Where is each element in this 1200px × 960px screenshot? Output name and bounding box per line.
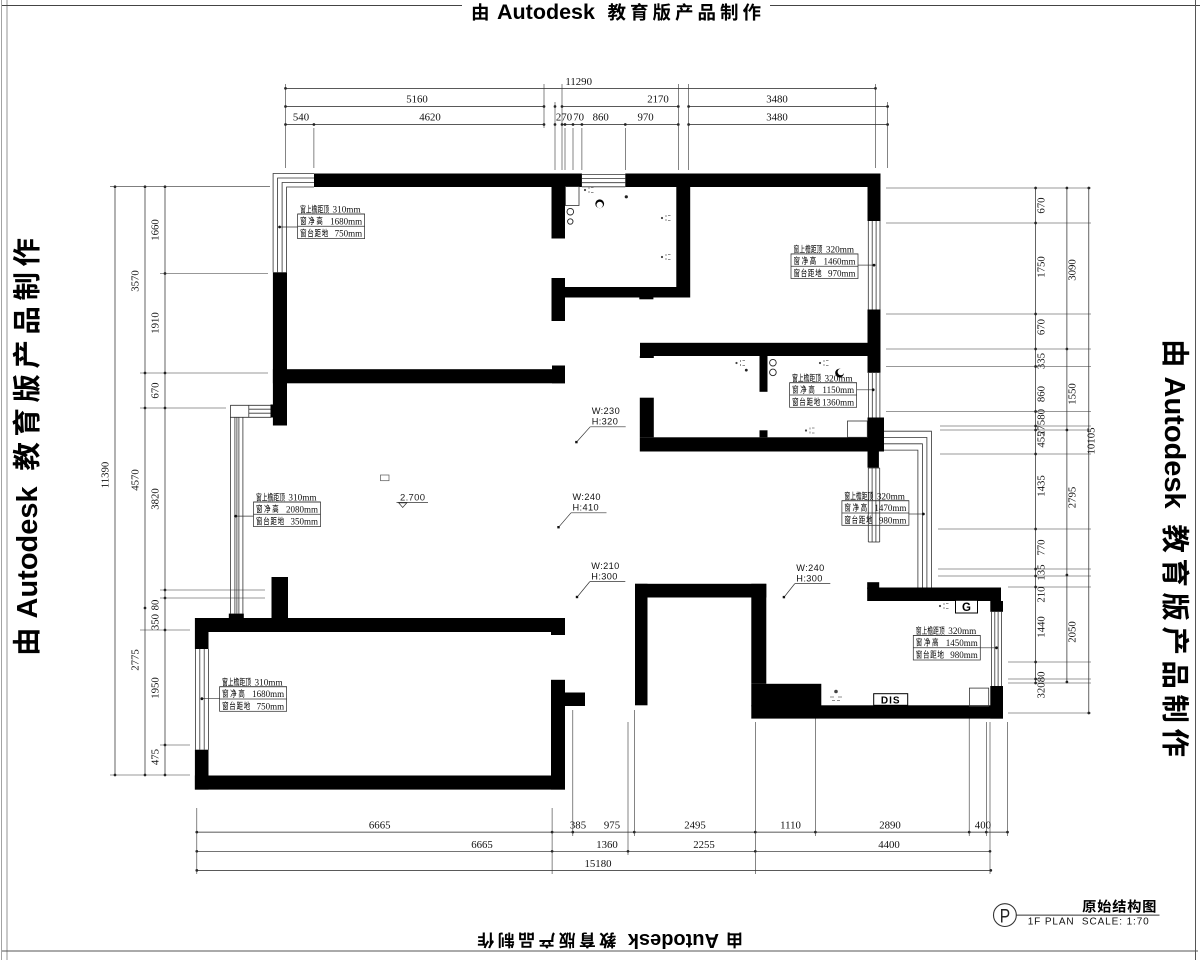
svg-text:670: 670 <box>150 382 162 398</box>
svg-text:2255: 2255 <box>693 839 715 851</box>
svg-text:2.700: 2.700 <box>400 493 425 504</box>
svg-text:1680mm: 1680mm <box>252 689 284 699</box>
svg-text:H:300: H:300 <box>796 574 823 584</box>
svg-text:135: 135 <box>1036 564 1048 580</box>
svg-text:3570: 3570 <box>130 270 142 292</box>
svg-text:2890: 2890 <box>879 820 901 832</box>
svg-text:1660: 1660 <box>150 219 162 241</box>
svg-text:3820: 3820 <box>150 488 162 510</box>
svg-text:1910: 1910 <box>150 312 162 334</box>
svg-text:3480: 3480 <box>766 94 788 106</box>
svg-text:1950: 1950 <box>150 677 162 699</box>
svg-text:H:320: H:320 <box>592 417 619 427</box>
svg-text:Autodesk: Autodesk <box>497 0 595 24</box>
svg-text:1360: 1360 <box>596 839 618 851</box>
svg-text:1680mm: 1680mm <box>330 216 362 226</box>
svg-text:770: 770 <box>1036 539 1048 555</box>
svg-text:455: 455 <box>1036 431 1048 447</box>
svg-text:310mm: 310mm <box>255 677 283 687</box>
svg-text:320mm: 320mm <box>948 626 976 636</box>
svg-text:6665: 6665 <box>471 839 493 851</box>
svg-text:350: 350 <box>150 614 162 630</box>
svg-text:1360mm: 1360mm <box>822 397 854 407</box>
svg-text:1550: 1550 <box>1067 383 1079 405</box>
svg-text:350mm: 350mm <box>290 517 318 527</box>
svg-text:320mm: 320mm <box>877 491 905 501</box>
svg-text:80: 80 <box>150 600 162 611</box>
svg-text:970: 970 <box>637 112 653 124</box>
svg-text:70: 70 <box>573 112 584 124</box>
svg-text:4570: 4570 <box>130 469 142 491</box>
svg-text:970mm: 970mm <box>828 269 856 279</box>
svg-text:670: 670 <box>1036 319 1048 335</box>
svg-text:670: 670 <box>1036 197 1048 213</box>
svg-text:270: 270 <box>556 112 572 124</box>
svg-text:750mm: 750mm <box>257 701 285 711</box>
svg-text:DIS: DIS <box>881 695 901 706</box>
svg-text:H:410: H:410 <box>573 503 600 513</box>
svg-text:1110: 1110 <box>780 820 801 832</box>
svg-text:Autodesk: Autodesk <box>627 929 719 951</box>
svg-text:210: 210 <box>1036 586 1048 602</box>
svg-text:1470mm: 1470mm <box>874 503 906 513</box>
svg-text:860: 860 <box>593 112 609 124</box>
svg-text:Autodesk: Autodesk <box>1158 377 1190 510</box>
svg-text:2775: 2775 <box>130 649 142 671</box>
svg-text:2170: 2170 <box>647 94 669 106</box>
svg-text:475: 475 <box>150 749 162 765</box>
svg-text:Autodesk: Autodesk <box>12 486 44 619</box>
svg-text:1750: 1750 <box>1036 256 1048 278</box>
svg-text:6665: 6665 <box>369 820 391 832</box>
svg-text:320mm: 320mm <box>826 245 854 255</box>
svg-text:3480: 3480 <box>766 112 788 124</box>
svg-text:1440: 1440 <box>1036 616 1048 638</box>
svg-text:310mm: 310mm <box>333 205 361 215</box>
svg-text:2795: 2795 <box>1067 487 1079 509</box>
svg-text:11390: 11390 <box>100 462 112 489</box>
svg-text:W:240: W:240 <box>796 563 824 573</box>
svg-text:H:300: H:300 <box>591 572 618 582</box>
svg-text:15180: 15180 <box>585 858 612 870</box>
svg-text:860: 860 <box>1036 386 1048 402</box>
svg-text:2495: 2495 <box>684 820 706 832</box>
svg-text:310mm: 310mm <box>288 493 316 503</box>
svg-text:W:230: W:230 <box>592 406 620 416</box>
svg-text:11290: 11290 <box>565 76 592 88</box>
svg-text:1460mm: 1460mm <box>823 256 855 266</box>
svg-text:G: G <box>962 602 971 614</box>
svg-text:3090: 3090 <box>1067 259 1079 281</box>
svg-text:10105: 10105 <box>1086 428 1098 455</box>
svg-text:975: 975 <box>604 820 620 832</box>
svg-text:1F PLAN SCALE: 1:70: 1F PLAN SCALE: 1:70 <box>1028 917 1150 928</box>
svg-text:1150mm: 1150mm <box>822 385 854 395</box>
svg-text:2050: 2050 <box>1067 621 1079 643</box>
svg-text:2080mm: 2080mm <box>286 504 318 514</box>
svg-text:4400: 4400 <box>878 839 900 851</box>
svg-text:W:240: W:240 <box>573 492 601 502</box>
svg-text:5160: 5160 <box>406 94 428 106</box>
svg-text:540: 540 <box>293 112 309 124</box>
svg-text:980mm: 980mm <box>879 515 907 525</box>
svg-text:1450mm: 1450mm <box>946 638 978 648</box>
svg-text:385: 385 <box>570 820 586 832</box>
svg-text:1435: 1435 <box>1036 475 1048 497</box>
svg-text:32080: 32080 <box>1036 672 1048 699</box>
svg-text:400: 400 <box>975 820 991 832</box>
svg-text:4620: 4620 <box>419 112 441 124</box>
svg-text:P: P <box>1000 905 1010 927</box>
svg-text:W:210: W:210 <box>591 561 619 571</box>
svg-text:980mm: 980mm <box>950 650 978 660</box>
svg-text:320mm: 320mm <box>825 373 853 383</box>
svg-text:750mm: 750mm <box>335 229 363 239</box>
